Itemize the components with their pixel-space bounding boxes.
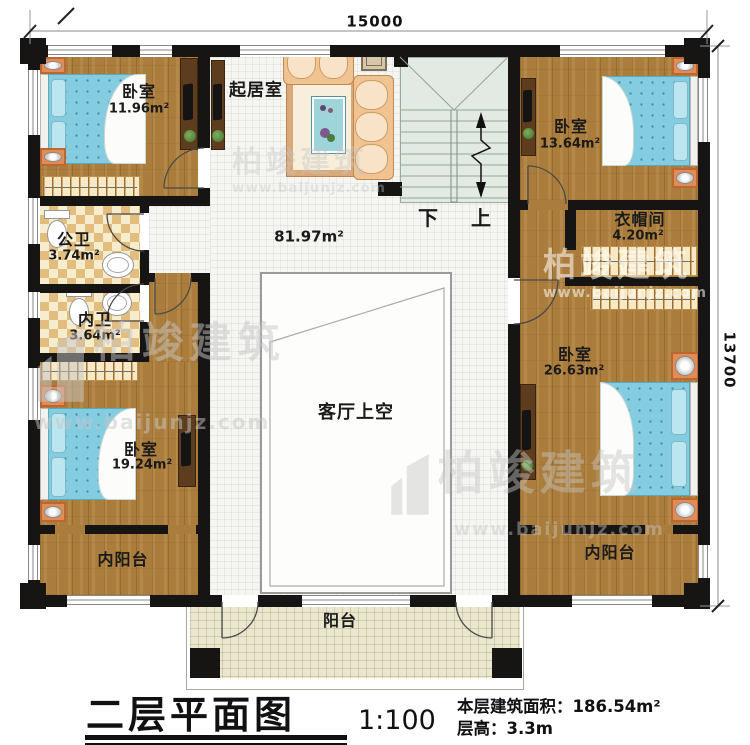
passage-opening <box>535 525 563 534</box>
toilet-tank <box>44 210 70 219</box>
corner-block <box>684 38 710 64</box>
living-void <box>260 272 452 594</box>
room-label-bedroom-top-right: 卧室 <box>554 119 588 135</box>
nightstand <box>40 148 66 166</box>
room-area-inner-bath: 3.64m² <box>69 330 120 343</box>
plan-scale: 1:100 <box>358 705 436 736</box>
wall-mid-right <box>508 45 520 607</box>
room-area-bedroom-top-right: 13.64m² <box>540 138 600 151</box>
room-label-public-bath: 公卫 <box>57 232 91 248</box>
staircase <box>400 57 509 203</box>
sink <box>102 252 134 278</box>
window <box>67 595 150 607</box>
stair-down-label: 下 <box>418 208 438 228</box>
hall-area-label: 81.97m² <box>274 230 344 245</box>
wall-cloak-south <box>565 277 710 286</box>
room-label-inner-bath: 内卫 <box>78 312 112 328</box>
bed-headboard <box>690 382 698 496</box>
tv-icon <box>213 84 222 121</box>
window <box>48 45 112 57</box>
plant-icon <box>184 130 196 142</box>
wall-bath-divider <box>28 284 149 293</box>
door-opening <box>140 213 149 250</box>
plant-icon <box>523 128 534 139</box>
room-area-bedroom-bottom-left: 19.24m² <box>112 459 172 472</box>
floor-hallway-wood <box>149 273 198 362</box>
door-opening <box>508 278 520 324</box>
door-opening <box>140 285 149 322</box>
sofa-cushion <box>355 112 388 142</box>
stair-up-label: 上 <box>471 208 491 228</box>
corner-block <box>684 583 710 609</box>
window <box>698 545 710 578</box>
window <box>28 545 40 580</box>
balcony-column-right <box>492 648 522 678</box>
room-label-bedroom-bottom-left: 卧室 <box>124 442 158 458</box>
title-underline-thick <box>85 735 347 740</box>
tv-icon <box>523 90 532 123</box>
window <box>572 595 652 607</box>
bed-pillow <box>673 123 688 161</box>
wall-bedroomTL-south <box>28 196 210 206</box>
flower-icon <box>320 105 326 111</box>
window <box>28 368 40 420</box>
room-label-void: 客厅上空 <box>318 404 394 422</box>
dimension-width: 15000 <box>346 15 403 30</box>
room-label-inner-balcony-right: 内阳台 <box>584 545 635 561</box>
bed-headboard <box>690 76 698 166</box>
room-label-inner-balcony-left: 内阳台 <box>97 552 148 568</box>
plan-floor-height: 层高：3.3m <box>457 720 553 739</box>
wardrobe <box>42 176 140 197</box>
cloakroom-rack <box>581 246 697 276</box>
passage-opening <box>645 525 673 534</box>
tv-icon <box>183 83 193 120</box>
room-area-cloakroom: 4.20m² <box>612 230 663 243</box>
window <box>240 45 330 57</box>
bed-pillow <box>671 389 687 435</box>
wall-bath-south <box>28 353 149 362</box>
room-area-bedroom-top-left: 11.96m² <box>109 103 169 116</box>
plant-icon <box>522 460 533 471</box>
door-opening <box>222 595 258 607</box>
wall-mid-left <box>198 45 210 607</box>
wall-stair-stub-top <box>394 45 408 67</box>
window <box>28 198 40 244</box>
wall-hall-jamb <box>149 273 155 282</box>
bed-pillow <box>51 413 66 453</box>
room-label-bedroom-top-left: 卧室 <box>122 84 156 100</box>
room-label-balcony: 阳台 <box>323 613 357 629</box>
flower-icon <box>327 134 335 142</box>
dimension-height: 13700 <box>722 331 737 388</box>
bed-pillow <box>51 79 66 117</box>
floor-hallway-tile <box>149 206 198 273</box>
wardrobe <box>40 360 138 381</box>
passage-opening <box>168 525 196 534</box>
bed-pillow <box>671 441 687 487</box>
corner-block <box>20 583 46 609</box>
window <box>28 292 40 318</box>
room-area-public-bath: 3.74m² <box>48 250 99 263</box>
wall-hall-jamb <box>191 273 210 282</box>
sofa-cushion <box>355 80 388 110</box>
bed-pillow <box>673 81 688 119</box>
corner-block <box>20 38 46 64</box>
bed-pillow <box>51 457 66 497</box>
passage-opening <box>55 525 85 534</box>
window <box>560 45 665 57</box>
tv-icon <box>181 431 191 466</box>
nightstand <box>40 385 66 407</box>
coffee-table <box>312 97 345 153</box>
nightstand <box>671 352 699 380</box>
window <box>140 45 172 57</box>
passage-opening <box>198 206 210 273</box>
plan-floor-area: 本层建筑面积：186.54m² <box>457 698 661 717</box>
plan-title: 二层平面图 <box>86 694 296 738</box>
flower-icon <box>328 108 333 113</box>
window <box>28 70 40 135</box>
wall-cloak-west <box>565 210 576 250</box>
nightstand <box>671 498 699 522</box>
balcony-column-left <box>190 648 220 678</box>
room-label-cloakroom: 衣帽间 <box>614 212 665 228</box>
window <box>302 595 410 607</box>
wardrobe <box>590 288 698 310</box>
door-opening <box>198 148 210 188</box>
room-label-living: 起居室 <box>229 83 283 100</box>
door-opening <box>528 200 568 210</box>
window <box>698 78 710 142</box>
nightstand <box>40 502 66 522</box>
door-opening <box>456 595 492 607</box>
room-area-bedroom-right: 26.63m² <box>544 365 604 378</box>
plant-icon <box>212 130 224 142</box>
wall-stair-stub-bottom <box>378 182 402 196</box>
floor-plan-canvas: 卧室 11.96m² 起居室 81.97m² 卧室 13.64m² 衣帽间 4.… <box>0 0 750 745</box>
nightstand <box>672 168 698 188</box>
tv-icon <box>522 410 531 451</box>
door-opening <box>565 250 576 277</box>
room-label-bedroom-right: 卧室 <box>558 347 592 363</box>
sofa-cushion <box>355 144 388 174</box>
